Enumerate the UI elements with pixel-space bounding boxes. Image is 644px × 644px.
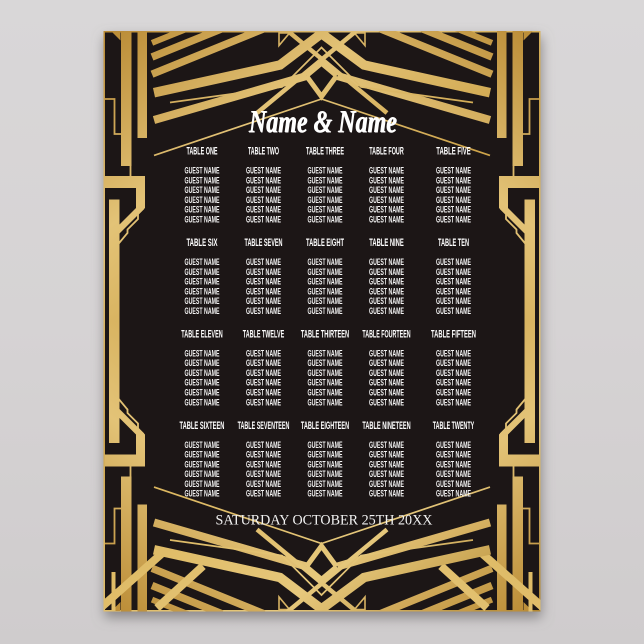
svg-text:GUEST NAME: GUEST NAME bbox=[369, 489, 404, 499]
svg-text:GUEST NAME: GUEST NAME bbox=[185, 267, 220, 277]
svg-text:GUEST NAME: GUEST NAME bbox=[185, 195, 220, 205]
svg-text:GUEST NAME: GUEST NAME bbox=[308, 388, 343, 398]
svg-text:GUEST NAME: GUEST NAME bbox=[436, 185, 471, 195]
svg-text:GUEST NAME: GUEST NAME bbox=[185, 378, 220, 388]
svg-text:GUEST NAME: GUEST NAME bbox=[436, 378, 471, 388]
svg-text:GUEST NAME: GUEST NAME bbox=[369, 368, 404, 378]
svg-text:GUEST NAME: GUEST NAME bbox=[246, 277, 281, 287]
svg-text:GUEST NAME: GUEST NAME bbox=[308, 459, 343, 469]
svg-text:GUEST NAME: GUEST NAME bbox=[246, 205, 281, 215]
svg-text:GUEST NAME: GUEST NAME bbox=[185, 277, 220, 287]
svg-text:GUEST NAME: GUEST NAME bbox=[246, 368, 281, 378]
svg-text:GUEST NAME: GUEST NAME bbox=[369, 205, 404, 215]
svg-text:GUEST NAME: GUEST NAME bbox=[369, 286, 404, 296]
svg-text:GUEST NAME: GUEST NAME bbox=[246, 267, 281, 277]
svg-text:GUEST NAME: GUEST NAME bbox=[185, 479, 220, 489]
svg-text:GUEST NAME: GUEST NAME bbox=[369, 469, 404, 479]
svg-text:GUEST NAME: GUEST NAME bbox=[369, 215, 404, 225]
svg-text:GUEST NAME: GUEST NAME bbox=[308, 215, 343, 225]
svg-text:GUEST NAME: GUEST NAME bbox=[436, 166, 471, 176]
svg-text:GUEST NAME: GUEST NAME bbox=[185, 459, 220, 469]
svg-text:TABLE TWENTY: TABLE TWENTY bbox=[433, 420, 475, 432]
svg-text:GUEST NAME: GUEST NAME bbox=[436, 489, 471, 499]
svg-text:GUEST NAME: GUEST NAME bbox=[185, 440, 220, 450]
svg-text:SATURDAY OCTOBER 25TH 20XX: SATURDAY OCTOBER 25TH 20XX bbox=[216, 513, 433, 529]
svg-text:GUEST NAME: GUEST NAME bbox=[185, 450, 220, 460]
svg-text:GUEST NAME: GUEST NAME bbox=[369, 358, 404, 368]
svg-text:GUEST NAME: GUEST NAME bbox=[369, 306, 404, 316]
svg-text:GUEST NAME: GUEST NAME bbox=[436, 440, 471, 450]
svg-text:GUEST NAME: GUEST NAME bbox=[246, 440, 281, 450]
svg-text:GUEST NAME: GUEST NAME bbox=[246, 479, 281, 489]
svg-text:GUEST NAME: GUEST NAME bbox=[436, 388, 471, 398]
svg-text:GUEST NAME: GUEST NAME bbox=[436, 277, 471, 287]
svg-text:GUEST NAME: GUEST NAME bbox=[308, 296, 343, 306]
svg-text:TABLE SEVENTEEN: TABLE SEVENTEEN bbox=[238, 420, 290, 432]
svg-text:GUEST NAME: GUEST NAME bbox=[369, 175, 404, 185]
svg-text:GUEST NAME: GUEST NAME bbox=[369, 277, 404, 287]
svg-text:GUEST NAME: GUEST NAME bbox=[369, 267, 404, 277]
svg-text:GUEST NAME: GUEST NAME bbox=[369, 440, 404, 450]
svg-text:GUEST NAME: GUEST NAME bbox=[369, 397, 404, 407]
svg-text:GUEST NAME: GUEST NAME bbox=[308, 205, 343, 215]
svg-text:TABLE SIX: TABLE SIX bbox=[186, 237, 217, 249]
svg-text:GUEST NAME: GUEST NAME bbox=[436, 296, 471, 306]
svg-text:GUEST NAME: GUEST NAME bbox=[308, 479, 343, 489]
svg-text:GUEST NAME: GUEST NAME bbox=[436, 267, 471, 277]
svg-text:TABLE ELEVEN: TABLE ELEVEN bbox=[181, 329, 222, 341]
svg-text:GUEST NAME: GUEST NAME bbox=[185, 306, 220, 316]
svg-text:GUEST NAME: GUEST NAME bbox=[246, 388, 281, 398]
svg-text:GUEST NAME: GUEST NAME bbox=[246, 469, 281, 479]
svg-text:GUEST NAME: GUEST NAME bbox=[436, 469, 471, 479]
svg-text:GUEST NAME: GUEST NAME bbox=[185, 185, 220, 195]
svg-text:GUEST NAME: GUEST NAME bbox=[369, 195, 404, 205]
svg-text:GUEST NAME: GUEST NAME bbox=[246, 348, 281, 358]
svg-text:GUEST NAME: GUEST NAME bbox=[246, 450, 281, 460]
svg-text:GUEST NAME: GUEST NAME bbox=[436, 397, 471, 407]
svg-text:GUEST NAME: GUEST NAME bbox=[308, 368, 343, 378]
svg-text:GUEST NAME: GUEST NAME bbox=[436, 215, 471, 225]
svg-text:GUEST NAME: GUEST NAME bbox=[185, 296, 220, 306]
svg-text:GUEST NAME: GUEST NAME bbox=[246, 215, 281, 225]
svg-text:GUEST NAME: GUEST NAME bbox=[308, 469, 343, 479]
svg-text:GUEST NAME: GUEST NAME bbox=[246, 378, 281, 388]
svg-text:TABLE TEN: TABLE TEN bbox=[438, 237, 469, 249]
svg-text:GUEST NAME: GUEST NAME bbox=[369, 479, 404, 489]
svg-text:GUEST NAME: GUEST NAME bbox=[308, 195, 343, 205]
svg-text:TABLE FOUR: TABLE FOUR bbox=[369, 146, 404, 158]
svg-text:TABLE EIGHT: TABLE EIGHT bbox=[306, 237, 344, 249]
svg-text:GUEST NAME: GUEST NAME bbox=[308, 489, 343, 499]
svg-text:GUEST NAME: GUEST NAME bbox=[308, 257, 343, 267]
svg-text:GUEST NAME: GUEST NAME bbox=[436, 205, 471, 215]
svg-text:GUEST NAME: GUEST NAME bbox=[436, 175, 471, 185]
svg-text:GUEST NAME: GUEST NAME bbox=[369, 450, 404, 460]
svg-text:GUEST NAME: GUEST NAME bbox=[436, 459, 471, 469]
svg-text:GUEST NAME: GUEST NAME bbox=[185, 257, 220, 267]
svg-text:TABLE ONE: TABLE ONE bbox=[186, 146, 217, 158]
svg-text:GUEST NAME: GUEST NAME bbox=[436, 257, 471, 267]
svg-text:GUEST NAME: GUEST NAME bbox=[185, 368, 220, 378]
svg-text:GUEST NAME: GUEST NAME bbox=[436, 358, 471, 368]
svg-text:GUEST NAME: GUEST NAME bbox=[246, 257, 281, 267]
svg-text:GUEST NAME: GUEST NAME bbox=[246, 166, 281, 176]
svg-text:GUEST NAME: GUEST NAME bbox=[185, 358, 220, 368]
svg-text:GUEST NAME: GUEST NAME bbox=[185, 489, 220, 499]
svg-text:GUEST NAME: GUEST NAME bbox=[185, 397, 220, 407]
svg-text:GUEST NAME: GUEST NAME bbox=[185, 166, 220, 176]
svg-text:GUEST NAME: GUEST NAME bbox=[308, 348, 343, 358]
svg-text:GUEST NAME: GUEST NAME bbox=[436, 450, 471, 460]
svg-text:GUEST NAME: GUEST NAME bbox=[369, 257, 404, 267]
svg-text:GUEST NAME: GUEST NAME bbox=[185, 215, 220, 225]
svg-text:GUEST NAME: GUEST NAME bbox=[308, 277, 343, 287]
svg-text:GUEST NAME: GUEST NAME bbox=[369, 185, 404, 195]
svg-text:GUEST NAME: GUEST NAME bbox=[369, 348, 404, 358]
svg-text:GUEST NAME: GUEST NAME bbox=[436, 479, 471, 489]
svg-text:GUEST NAME: GUEST NAME bbox=[308, 397, 343, 407]
svg-text:GUEST NAME: GUEST NAME bbox=[185, 205, 220, 215]
svg-text:GUEST NAME: GUEST NAME bbox=[308, 440, 343, 450]
svg-text:GUEST NAME: GUEST NAME bbox=[369, 459, 404, 469]
svg-text:GUEST NAME: GUEST NAME bbox=[369, 166, 404, 176]
svg-text:GUEST NAME: GUEST NAME bbox=[308, 166, 343, 176]
svg-text:TABLE FOURTEEN: TABLE FOURTEEN bbox=[362, 329, 410, 341]
svg-text:GUEST NAME: GUEST NAME bbox=[436, 286, 471, 296]
svg-text:GUEST NAME: GUEST NAME bbox=[246, 296, 281, 306]
svg-text:GUEST NAME: GUEST NAME bbox=[436, 306, 471, 316]
svg-text:GUEST NAME: GUEST NAME bbox=[246, 185, 281, 195]
svg-text:TABLE NINETEEN: TABLE NINETEEN bbox=[362, 420, 410, 432]
svg-text:GUEST NAME: GUEST NAME bbox=[246, 306, 281, 316]
svg-text:TABLE THIRTEEN: TABLE THIRTEEN bbox=[301, 329, 349, 341]
svg-text:GUEST NAME: GUEST NAME bbox=[369, 378, 404, 388]
svg-text:GUEST NAME: GUEST NAME bbox=[308, 175, 343, 185]
svg-text:GUEST NAME: GUEST NAME bbox=[246, 397, 281, 407]
svg-text:TABLE FIFTEEN: TABLE FIFTEEN bbox=[431, 329, 476, 341]
svg-text:GUEST NAME: GUEST NAME bbox=[308, 378, 343, 388]
svg-text:GUEST NAME: GUEST NAME bbox=[246, 286, 281, 296]
svg-text:GUEST NAME: GUEST NAME bbox=[185, 175, 220, 185]
svg-text:GUEST NAME: GUEST NAME bbox=[246, 175, 281, 185]
svg-text:TABLE NINE: TABLE NINE bbox=[369, 237, 404, 249]
svg-text:GUEST NAME: GUEST NAME bbox=[185, 388, 220, 398]
svg-text:GUEST NAME: GUEST NAME bbox=[246, 489, 281, 499]
svg-text:GUEST NAME: GUEST NAME bbox=[369, 296, 404, 306]
svg-text:TABLE FIVE: TABLE FIVE bbox=[436, 146, 471, 158]
svg-text:TABLE TWO: TABLE TWO bbox=[248, 146, 279, 158]
svg-text:TABLE TWELVE: TABLE TWELVE bbox=[243, 329, 284, 341]
svg-text:TABLE THREE: TABLE THREE bbox=[306, 146, 344, 158]
svg-text:GUEST NAME: GUEST NAME bbox=[246, 195, 281, 205]
svg-text:GUEST NAME: GUEST NAME bbox=[246, 459, 281, 469]
svg-text:GUEST NAME: GUEST NAME bbox=[308, 267, 343, 277]
svg-text:GUEST NAME: GUEST NAME bbox=[185, 348, 220, 358]
svg-text:GUEST NAME: GUEST NAME bbox=[185, 469, 220, 479]
svg-text:GUEST NAME: GUEST NAME bbox=[436, 348, 471, 358]
svg-text:GUEST NAME: GUEST NAME bbox=[185, 286, 220, 296]
svg-text:TABLE EIGHTEEN: TABLE EIGHTEEN bbox=[301, 420, 349, 432]
svg-text:GUEST NAME: GUEST NAME bbox=[308, 306, 343, 316]
svg-text:GUEST NAME: GUEST NAME bbox=[369, 388, 404, 398]
svg-text:GUEST NAME: GUEST NAME bbox=[246, 358, 281, 368]
svg-text:TABLE SIXTEEN: TABLE SIXTEEN bbox=[180, 420, 225, 432]
svg-text:GUEST NAME: GUEST NAME bbox=[308, 286, 343, 296]
svg-text:Name & Name: Name & Name bbox=[248, 103, 397, 139]
svg-text:GUEST NAME: GUEST NAME bbox=[436, 195, 471, 205]
svg-text:GUEST NAME: GUEST NAME bbox=[308, 185, 343, 195]
svg-text:TABLE SEVEN: TABLE SEVEN bbox=[245, 237, 283, 249]
svg-text:GUEST NAME: GUEST NAME bbox=[436, 368, 471, 378]
svg-text:GUEST NAME: GUEST NAME bbox=[308, 450, 343, 460]
svg-text:GUEST NAME: GUEST NAME bbox=[308, 358, 343, 368]
